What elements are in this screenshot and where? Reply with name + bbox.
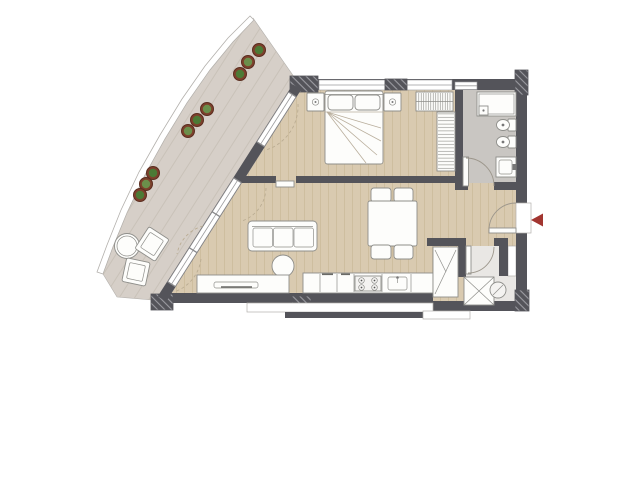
lounge-chair-2: [122, 258, 150, 286]
pier-top-right: [515, 70, 528, 95]
washing-machine-icon: [464, 277, 494, 305]
lamp-dot: [392, 101, 394, 103]
dining-chair: [394, 188, 413, 202]
lower-window-band: [247, 303, 433, 312]
planter-icon: [134, 189, 147, 202]
washbasin: [496, 157, 516, 177]
shaft: [508, 246, 516, 276]
planter-icon: [234, 68, 247, 81]
dining-chair: [394, 245, 413, 259]
utility-top-wall-l: [427, 238, 466, 246]
utility-left-wall: [458, 246, 466, 277]
utility-inner-wall: [499, 246, 508, 276]
bedroom-sliding-door: [276, 181, 294, 187]
toilet-icon: [497, 119, 517, 131]
planter-icon: [253, 44, 266, 57]
sofa: [248, 221, 317, 251]
partition-bedroom-b: [296, 176, 456, 183]
pillow: [355, 95, 380, 110]
utility-door-leaf: [466, 246, 471, 274]
coffee-table: [272, 255, 294, 277]
dining-table: [368, 201, 417, 246]
drain-dot: [482, 109, 484, 111]
pier-bottom-right: [515, 290, 529, 311]
bathroom-left-wall: [455, 88, 463, 190]
bathroom-door-leaf: [463, 157, 469, 186]
sideboard: [197, 275, 289, 293]
right-wall-upper: [516, 90, 527, 203]
outdoor-table: [115, 234, 140, 259]
wardrobe-folded-clothes: [438, 113, 454, 170]
lamp-dot: [315, 101, 317, 103]
utility-top-wall-r: [494, 238, 508, 246]
planter-icon: [242, 56, 255, 69]
entry-door-leaf: [489, 228, 516, 233]
kitchen: [303, 273, 433, 293]
entry-threshold: [516, 203, 531, 233]
planter-icon: [201, 103, 214, 116]
planter-icon: [191, 114, 204, 127]
planter-icon: [182, 125, 195, 138]
bidet-icon: [497, 136, 517, 148]
shelf-closet: [433, 247, 458, 297]
dining-chair: [371, 188, 391, 202]
utility-window-band: [423, 311, 470, 319]
boiler-icon: [490, 282, 506, 298]
cooktop-icon: [355, 276, 381, 291]
floor-plan: [0, 0, 639, 480]
bathroom-bottom-wall-r: [494, 182, 517, 190]
pier-top: [385, 79, 407, 90]
lower-outer-strip: [285, 312, 423, 318]
pillow: [328, 95, 353, 110]
dining-chair: [371, 245, 391, 259]
right-wall-lower: [516, 233, 527, 290]
entry-arrow-icon: [531, 214, 543, 227]
